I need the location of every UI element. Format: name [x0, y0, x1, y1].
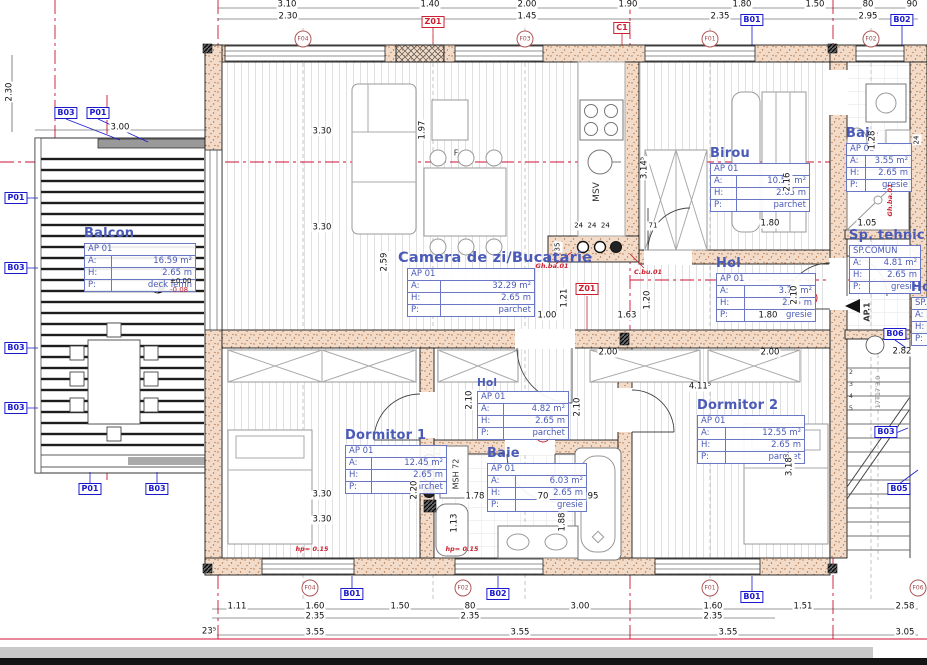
dim-label: 1.80: [758, 312, 779, 321]
dim-label: 1.13: [451, 513, 460, 534]
parapet-note: hp= 0.15: [445, 545, 478, 553]
dim-label: 1.50: [390, 603, 411, 612]
room-hol-small: Hol AP 01 A:4.82 m² H:2.65 m P:parchet: [477, 377, 569, 440]
washer-label: MSH 72: [452, 459, 461, 490]
room-title: Birou: [710, 146, 810, 161]
dim-label: 1.28: [869, 130, 878, 151]
tag-f02: F02: [455, 580, 472, 597]
balcony: [35, 138, 207, 473]
room-info-table: AP 01 A:4.82 m² H:2.65 m P:parchet: [477, 391, 569, 440]
shaft-note: Gh.ba.01: [886, 184, 894, 217]
dim-label: 2.16: [784, 172, 793, 193]
room-hol-clipped: Hol SP.COMUN A: H: P:: [911, 280, 927, 346]
floor-plan-page: Balcon AP 01 A:16.59 m² H:2.65 m P:deck …: [0, 0, 927, 665]
dim-label: 80: [862, 1, 875, 10]
dim-label: 3.55: [718, 629, 739, 638]
dim-label: 2.35: [710, 13, 731, 22]
tag-p01: P01: [87, 107, 110, 119]
room-title: Hol: [716, 256, 816, 271]
dim-label: 4.11⁵: [688, 383, 712, 392]
dim-label: 3.30: [312, 516, 333, 525]
dim-label: 1.60: [703, 603, 724, 612]
room-birou: Birou AP 01 A:10.58 m² H:2.65 m P:parche…: [710, 146, 810, 212]
tag-b03: B03: [145, 483, 168, 495]
dim-label: 1.78: [465, 493, 486, 502]
tag-b06: B06: [883, 328, 906, 340]
dim-label: 1.05: [857, 220, 878, 229]
dim-label: 70: [537, 493, 550, 502]
tag-p01: P01: [5, 192, 28, 204]
tag-b03: B03: [4, 402, 27, 414]
dim-label: 1.50: [805, 1, 826, 10]
tag-f02: F02: [863, 31, 880, 48]
room-dormitor-1: Dormitor 1 AP 01 A:12.45 m² H:2.65 m P:p…: [345, 428, 447, 494]
tag-b03: B03: [4, 262, 27, 274]
dim-label: 2.30: [6, 82, 15, 103]
room-info-table: SP.COMUN A: H: P:: [911, 297, 927, 346]
tag-f01: F01: [702, 580, 719, 597]
dim-label: 2.35: [305, 613, 326, 622]
room-title: Hol: [911, 280, 927, 295]
dim-label: 1.90: [618, 1, 639, 10]
dim-label: 2.58: [895, 603, 916, 612]
fridge-label: F: [454, 149, 459, 158]
dim-label: 2.82: [892, 348, 913, 357]
dim-label: 1.80: [732, 1, 753, 10]
dim-label: 2.35: [460, 613, 481, 622]
stair-formula: 17T17'3.0: [874, 376, 882, 409]
stair-step-number: 3: [849, 380, 853, 388]
tag-z01: Z01: [422, 16, 445, 28]
dim-label: 1.97: [419, 120, 428, 141]
room-info-table: AP 01 A:6.03 m² H:2.65 m P:gresie: [487, 463, 587, 512]
tag-b01: B01: [740, 591, 763, 603]
dim-label: 2.10: [466, 390, 475, 411]
dim-label: 24 24 24: [573, 222, 611, 231]
parapet-note: hp= 0.15: [295, 545, 328, 553]
dim-label: 3.55: [305, 629, 326, 638]
room-title: Baie: [846, 126, 912, 141]
stair-step-number: 5: [849, 404, 853, 412]
room-baie-top: Baie AP 01 A:3.55 m² H:2.65 m P:gresie: [846, 126, 912, 192]
tag-b01: B01: [740, 14, 763, 26]
tag-b05: B05: [887, 483, 910, 495]
tag-f03: F03: [517, 31, 534, 48]
dim-label: 71: [648, 222, 659, 231]
dim-label: 2.95: [858, 13, 879, 22]
dim-label: 35: [554, 242, 563, 253]
room-info-table: AP 01 A:3.55 m² H:2.65 m P:gresie: [846, 143, 912, 192]
dim-label: 1.45: [517, 13, 538, 22]
room-title: Dormitor 1: [345, 428, 447, 443]
dim-label: 3.30: [312, 491, 333, 500]
dim-label: 2.00: [517, 1, 538, 10]
tag-b02: B02: [486, 588, 509, 600]
dim-label: 3.14⁵: [641, 156, 650, 180]
stairs: [847, 336, 910, 558]
dim-label: 23⁵: [201, 628, 217, 637]
dim-label: 1.40: [420, 1, 441, 10]
floor-plan-drawing: [0, 0, 927, 665]
dim-label: 2.30: [278, 13, 299, 22]
stair-step-number: 2: [849, 368, 853, 376]
dim-label: 24: [913, 135, 922, 146]
room-title: Hol: [477, 377, 569, 389]
level-value: ±0.00: [170, 277, 191, 285]
stair-step-number: 4: [849, 392, 853, 400]
dim-label: 3.00: [110, 124, 131, 133]
tag-z01: Z01: [576, 283, 599, 295]
tag-f04: F04: [295, 31, 312, 48]
apartment-entry-label: AP.1: [863, 302, 872, 321]
taskbar-black: [0, 658, 927, 665]
room-info-table: AP 01 A:12.45 m² H:2.65 m P:parchet: [345, 445, 447, 494]
dim-label: 3.30: [312, 224, 333, 233]
dim-label: 2.00: [598, 349, 619, 358]
tag-b01: B01: [340, 588, 363, 600]
dishwasher-label: MSV: [592, 182, 602, 202]
dim-label: 1.80: [760, 220, 781, 229]
tag-c1: C1: [613, 22, 630, 34]
room-title: Sp. tehnic: [849, 228, 925, 243]
room-title: Dormitor 2: [697, 398, 805, 413]
dim-label: 2.35: [703, 613, 724, 622]
tag-f04: F04: [302, 580, 319, 597]
room-title: Baie: [487, 446, 587, 461]
tag-p01: P01: [79, 483, 102, 495]
tag-b03: B03: [4, 342, 27, 354]
room-info-table: AP 01 A:10.58 m² H:2.65 m P:parchet: [710, 163, 810, 212]
tag-f06: F06: [910, 580, 927, 597]
dim-label: 1.63: [617, 312, 638, 321]
dim-label: 3.00: [570, 603, 591, 612]
flue-note: C.bu.01: [634, 268, 662, 276]
dim-label: 3.10: [277, 1, 298, 10]
dim-label: 1.60: [305, 603, 326, 612]
dim-label: 2.10: [791, 285, 800, 306]
dim-label: 1.20: [644, 290, 653, 311]
dim-label: 1.11: [227, 603, 248, 612]
room-info-table: AP 01 A:32.29 m² H:2.65 m P:parchet: [407, 268, 535, 317]
tag-b03: B03: [874, 426, 897, 438]
dim-label: 1.00: [537, 312, 558, 321]
dim-label: 3.55: [510, 629, 531, 638]
level-value-finish: -0.08: [170, 286, 188, 294]
tag-f01: F01: [702, 31, 719, 48]
dim-label: 2.00: [760, 349, 781, 358]
shaft-note: Gh.ba.01: [536, 262, 569, 270]
dim-label: 2.10: [574, 397, 583, 418]
dim-label: 90: [906, 1, 919, 10]
dim-label: 3.30: [312, 128, 333, 137]
taskbar-gray: [0, 647, 873, 658]
dim-label: 1.51: [793, 603, 814, 612]
room-baie-bottom: Baie AP 01 A:6.03 m² H:2.65 m P:gresie: [487, 446, 587, 512]
dim-label: 2.59: [381, 252, 390, 273]
dim-label: 3.18⁵: [786, 453, 795, 477]
dim-label: 2.20: [411, 480, 420, 501]
room-title: Balcon: [84, 226, 196, 241]
dim-label: 80: [464, 603, 477, 612]
tag-b02: B02: [890, 14, 913, 26]
dim-label: 1.88: [559, 512, 568, 533]
dim-label: 3.05: [895, 629, 916, 638]
dim-label: 1.21: [561, 288, 570, 309]
tag-b03: B03: [54, 107, 77, 119]
dim-label: 95: [587, 493, 600, 502]
